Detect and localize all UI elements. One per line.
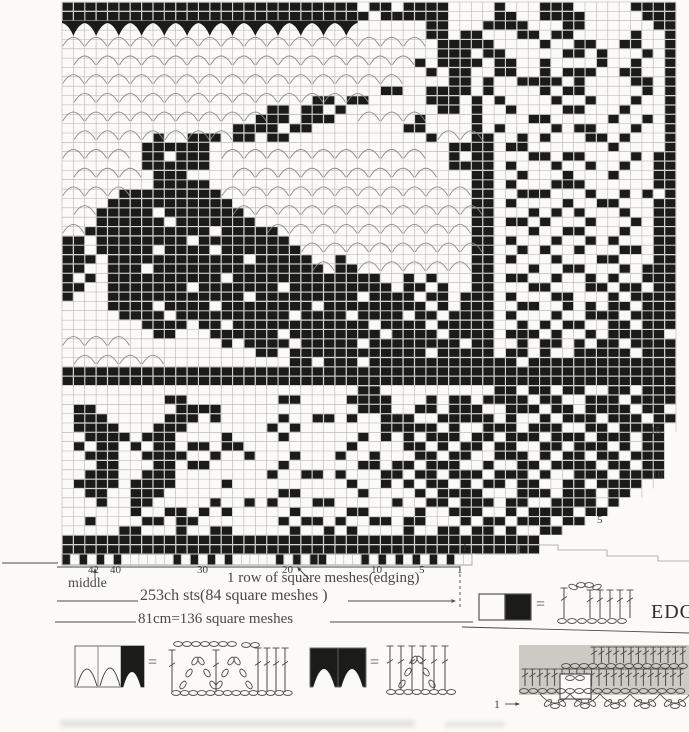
equals-sign-2: = [370,655,379,671]
chain-count-label: 253ch sts(84 square meshes ) [140,588,328,604]
bottom-axis-number: 1 [457,565,463,576]
bottom-axis-number: 5 [419,565,425,576]
edging-stitch-diagram [519,645,689,708]
filet-crochet-chart [0,0,689,732]
equals-sign-3: = [536,597,545,613]
edging-section-title: EDG [651,602,689,622]
right-axis-row-number: 5 [597,515,603,526]
legend-shell-symbol-1 [75,642,292,696]
legend-shell-symbol-2 [310,646,456,694]
print-smudge [60,720,415,727]
bottom-axis-number: 30 [197,565,208,576]
scanned-crochet-pattern-page: middle 1 row of square meshes(edging) 25… [0,0,689,732]
middle-label: middle [68,577,107,591]
bottom-axis-number: 40 [110,565,121,576]
bottom-axis-number: 10 [371,565,382,576]
edging-row-1-label: 1 [494,698,500,710]
edging-row-label: 1 row of square meshes(edging) [227,571,419,586]
edging-mesh-row [62,554,472,565]
right-axis-row-number: 1 [462,543,468,554]
right-axis-row-number: 10 [652,470,663,481]
equals-sign-1: = [148,655,157,671]
filled-mesh-cells [62,3,675,554]
right-axis-row-number: 15 [650,426,661,437]
legend-filled-mesh-symbol [479,583,634,624]
width-measure-label: 81cm=136 square meshes [138,612,293,627]
print-smudge [445,722,505,727]
bottom-axis-number: 42 [88,565,99,576]
bottom-axis-number: 20 [282,565,293,576]
